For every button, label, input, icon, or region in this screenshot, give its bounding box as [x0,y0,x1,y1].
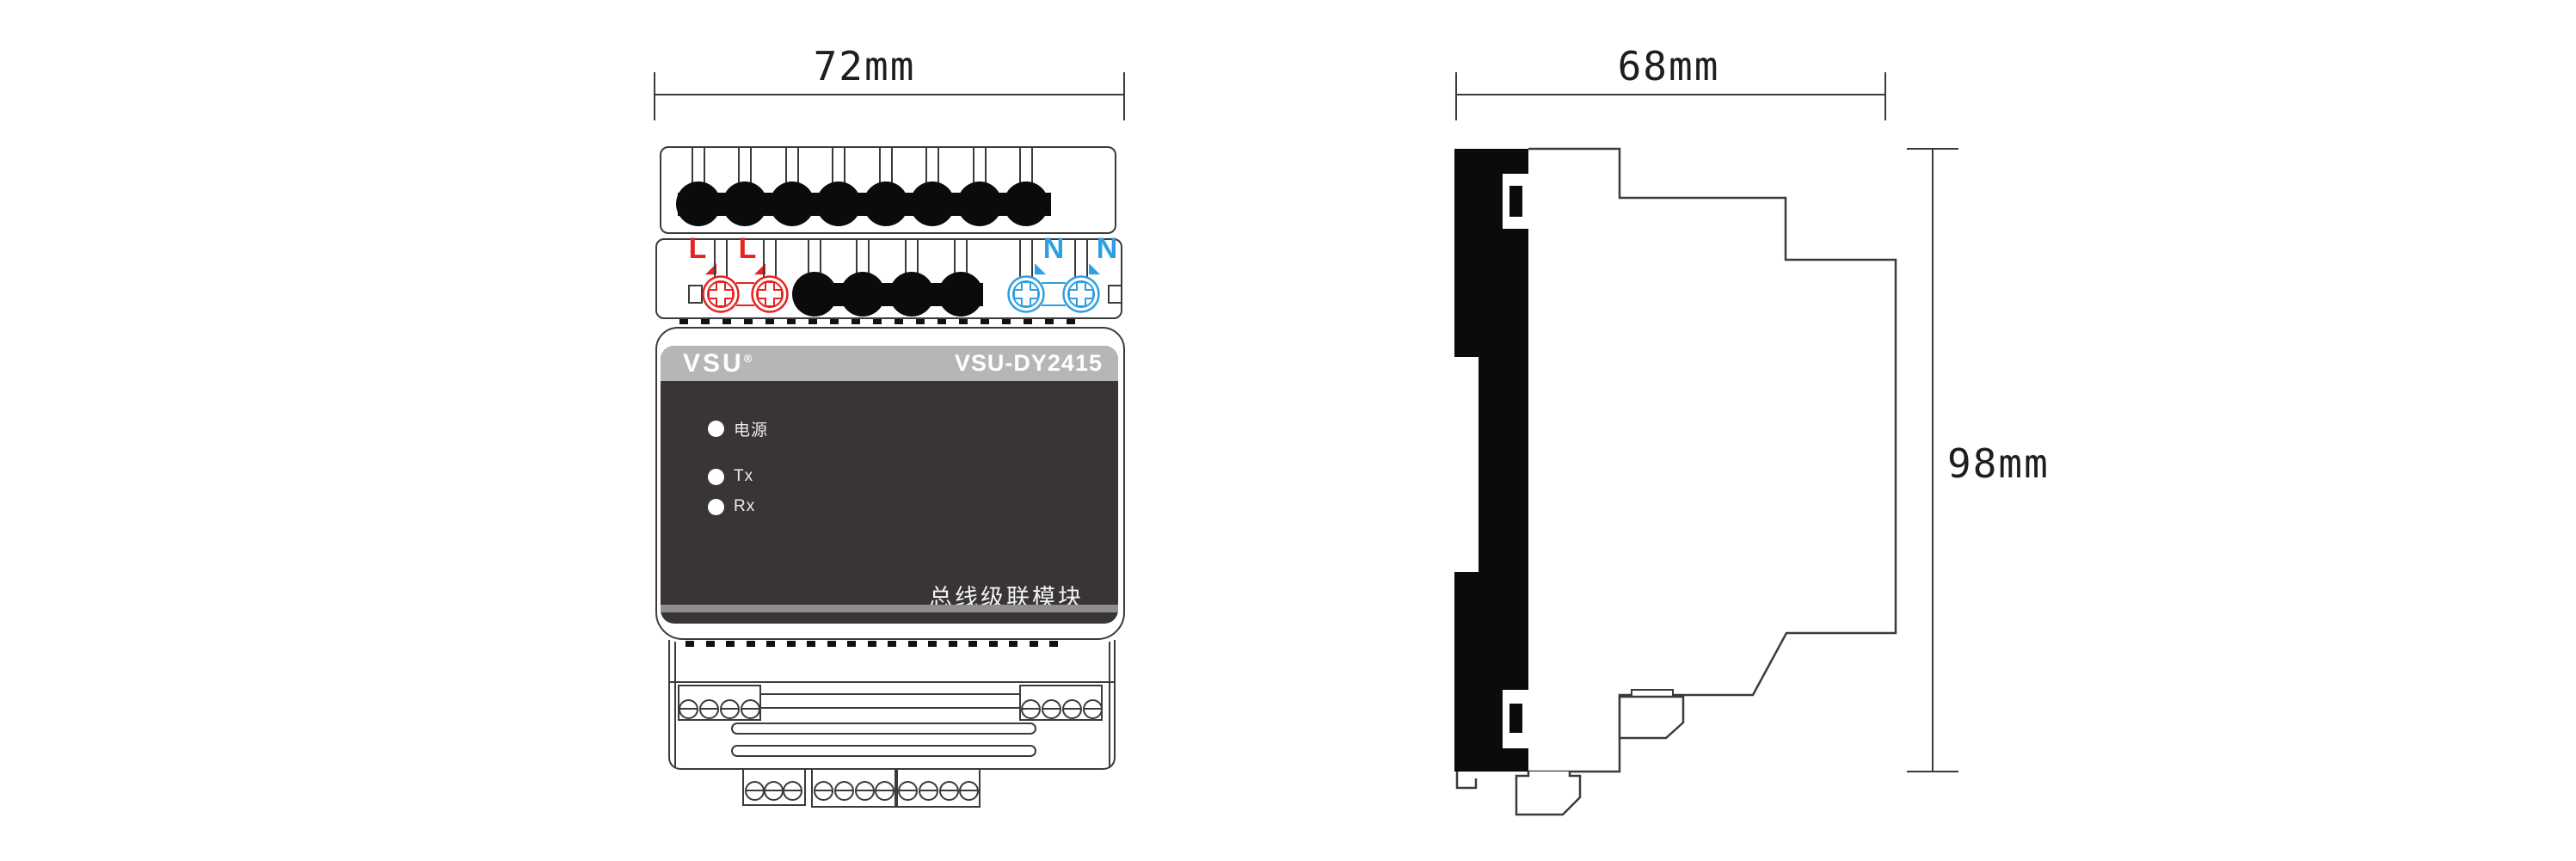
terminal-divider [879,148,881,184]
vent-dash [949,641,957,647]
vent-dash [1024,319,1032,324]
housing-profile [1528,149,1896,772]
screw-slot [701,708,717,710]
vent-dash [766,641,775,647]
screw-slot [900,790,916,791]
wire-terminal-blob [722,181,767,226]
front-width-dimension-tick-right [1123,72,1125,120]
slot-screw-icon [764,781,784,801]
terminal-divider [750,148,752,184]
screw-slot [765,790,782,791]
neutral-arrow-icon: ◣ [1035,261,1046,275]
vent-dash [928,641,937,647]
wire-terminal-blob [792,272,837,317]
terminal-connector-line [761,707,1019,709]
wire-terminal-blob [840,272,885,317]
terminal-divider [925,148,927,184]
screw-slot [941,790,957,791]
neutral-terminal-label: N [1039,234,1068,263]
slot-screw-icon [720,699,740,719]
vent-dash [1045,319,1054,324]
front-width-dimension-line [655,94,1124,95]
terminal-divider [985,148,987,184]
vent-dash [685,641,694,647]
terminal-divider [1031,240,1033,278]
terminal-divider [714,240,716,278]
vent-dash [787,319,796,324]
vent-dash [873,319,882,324]
vent-dash [868,641,876,647]
vent-dash [1002,319,1011,324]
front-width-dimension-tick-left [654,72,655,120]
vent-dash [989,641,998,647]
slot-screw-icon [1083,699,1103,719]
vent-dash [888,641,896,647]
slot-screw-icon [814,781,833,801]
vent-dash [679,319,688,324]
tx-led-label: Tx [734,467,753,486]
terminal-divider [797,148,799,184]
slot-screw-icon [1042,699,1061,719]
wire-terminal-blob [938,272,983,317]
terminal-divider [1031,148,1033,184]
terminal-divider [938,148,939,184]
vent-dash [1009,641,1017,647]
live-terminal-label: L [733,234,762,263]
screw-slot [1023,708,1039,710]
wire-terminal-blob [889,272,934,317]
vent-dash [938,319,946,324]
terminal-divider [1074,240,1076,278]
wire-terminal-blob [957,181,1002,226]
vent-dash [1067,319,1075,324]
screw-slot [836,790,852,791]
vent-dash [908,641,917,647]
wire-terminal-blob [770,181,815,226]
power-led-label: 电源 [734,417,768,440]
front-panel: VSU® VSU-DY2415 电源 Tx Rx 总线级联模块 [661,346,1118,624]
vent-dash [808,319,817,324]
ventilation-slot [731,723,1036,735]
screw-slot [920,790,937,791]
vent-dash [959,319,968,324]
din-rail-back [1454,149,1528,772]
rx-led-label: Rx [734,497,755,516]
screw-slot [747,790,763,791]
vent-dash [765,319,774,324]
screw-slot [857,790,873,791]
wire-terminal-blob [864,181,908,226]
vent-dash [807,641,815,647]
slot-screw-icon [1062,699,1082,719]
slot-screw-icon [741,699,760,719]
screw-slot [1043,708,1060,710]
vent-dash [722,319,731,324]
screw-slot [784,790,801,791]
live-screw-terminal-icon [750,274,790,314]
terminal-divider [775,240,777,278]
screw-slot [1085,708,1101,710]
terminal-divider [891,148,893,184]
vent-dash [827,641,836,647]
panel-header-bar: VSU® VSU-DY2415 [661,346,1118,381]
vent-dash [1030,641,1038,647]
slot-screw-icon [1021,699,1041,719]
vent-dash [968,641,977,647]
slot-screw-icon [679,699,698,719]
side-depth-dimension-label: 68mm [1583,43,1755,89]
terminal-divider [1086,240,1088,278]
ventilation-slot [731,745,1036,757]
slot-screw-icon [919,781,938,801]
vent-dash [981,319,989,324]
panel-bottom-highlight [661,605,1118,612]
lower-section-inner-wall [674,642,676,768]
vent-dash [787,641,796,647]
slot-screw-icon [875,781,895,801]
screw-slot [722,708,738,710]
side-mid-terminal-block [1620,697,1683,738]
terminal-divider [973,148,974,184]
terminal-divider [844,148,845,184]
slot-screw-icon [783,781,802,801]
screw-slot [961,790,977,791]
lower-section-inner-wall [1109,642,1110,768]
wire-terminal-blob [676,181,721,226]
wire-terminal-blob [816,181,861,226]
screw-slot [876,790,893,791]
neutral-screw-terminal-icon [1061,274,1101,314]
terminal-tab [1108,285,1122,304]
side-height-dimension-label: 98mm [1947,440,2050,487]
slot-screw-icon [959,781,979,801]
live-screw-terminal-icon [701,274,741,314]
slot-screw-icon [939,781,959,801]
neutral-arrow-icon: ◣ [1089,261,1100,275]
slot-screw-icon [745,781,765,801]
vent-dash [830,319,839,324]
terminal-divider [692,148,693,184]
screw-slot [680,708,697,710]
screw-slot [742,708,759,710]
vent-dash [701,319,710,324]
rail-clip-hook [1457,772,1476,788]
terminal-divider [1019,148,1021,184]
vent-dash [747,641,755,647]
terminal-divider [785,148,787,184]
terminal-divider [726,240,728,278]
terminal-connector-line [761,693,1019,695]
brand-logo-text: VSU [683,349,744,378]
terminal-divider [738,148,740,184]
vent-dash [916,319,925,324]
brand-logo: VSU® [683,349,752,378]
front-width-dimension-label: 72mm [774,43,955,89]
vent-dash [744,319,753,324]
terminal-divider [704,148,705,184]
wire-terminal-blob [1004,181,1048,226]
power-led [708,421,724,437]
vent-dash [847,641,856,647]
model-number: VSU-DY2415 [955,350,1103,377]
neutral-screw-terminal-icon [1006,274,1046,314]
vent-dash [895,319,903,324]
vent-dash [851,319,860,324]
slot-screw-icon [699,699,719,719]
vent-dash [726,641,735,647]
registered-mark: ® [744,352,753,365]
slot-screw-icon [834,781,854,801]
wire-terminal-blob [910,181,955,226]
live-terminal-label: L [683,234,712,263]
screw-slot [815,790,832,791]
tx-led [708,469,724,485]
terminal-divider [832,148,833,184]
slot-screw-icon [855,781,875,801]
terminal-divider [763,240,765,278]
neutral-terminal-label: N [1092,234,1122,263]
slot-screw-icon [898,781,918,801]
terminal-divider [1019,240,1021,278]
screw-slot [1064,708,1080,710]
side-bottom-terminal-block [1516,772,1580,815]
vent-dash [706,641,715,647]
rx-led [708,499,724,515]
vent-dash [1049,641,1058,647]
din-module-dimension-drawing: 72mm L L ◢ ◢ N N ◣ ◣ [0,0,2576,861]
lower-section-top-edge [670,681,1114,683]
